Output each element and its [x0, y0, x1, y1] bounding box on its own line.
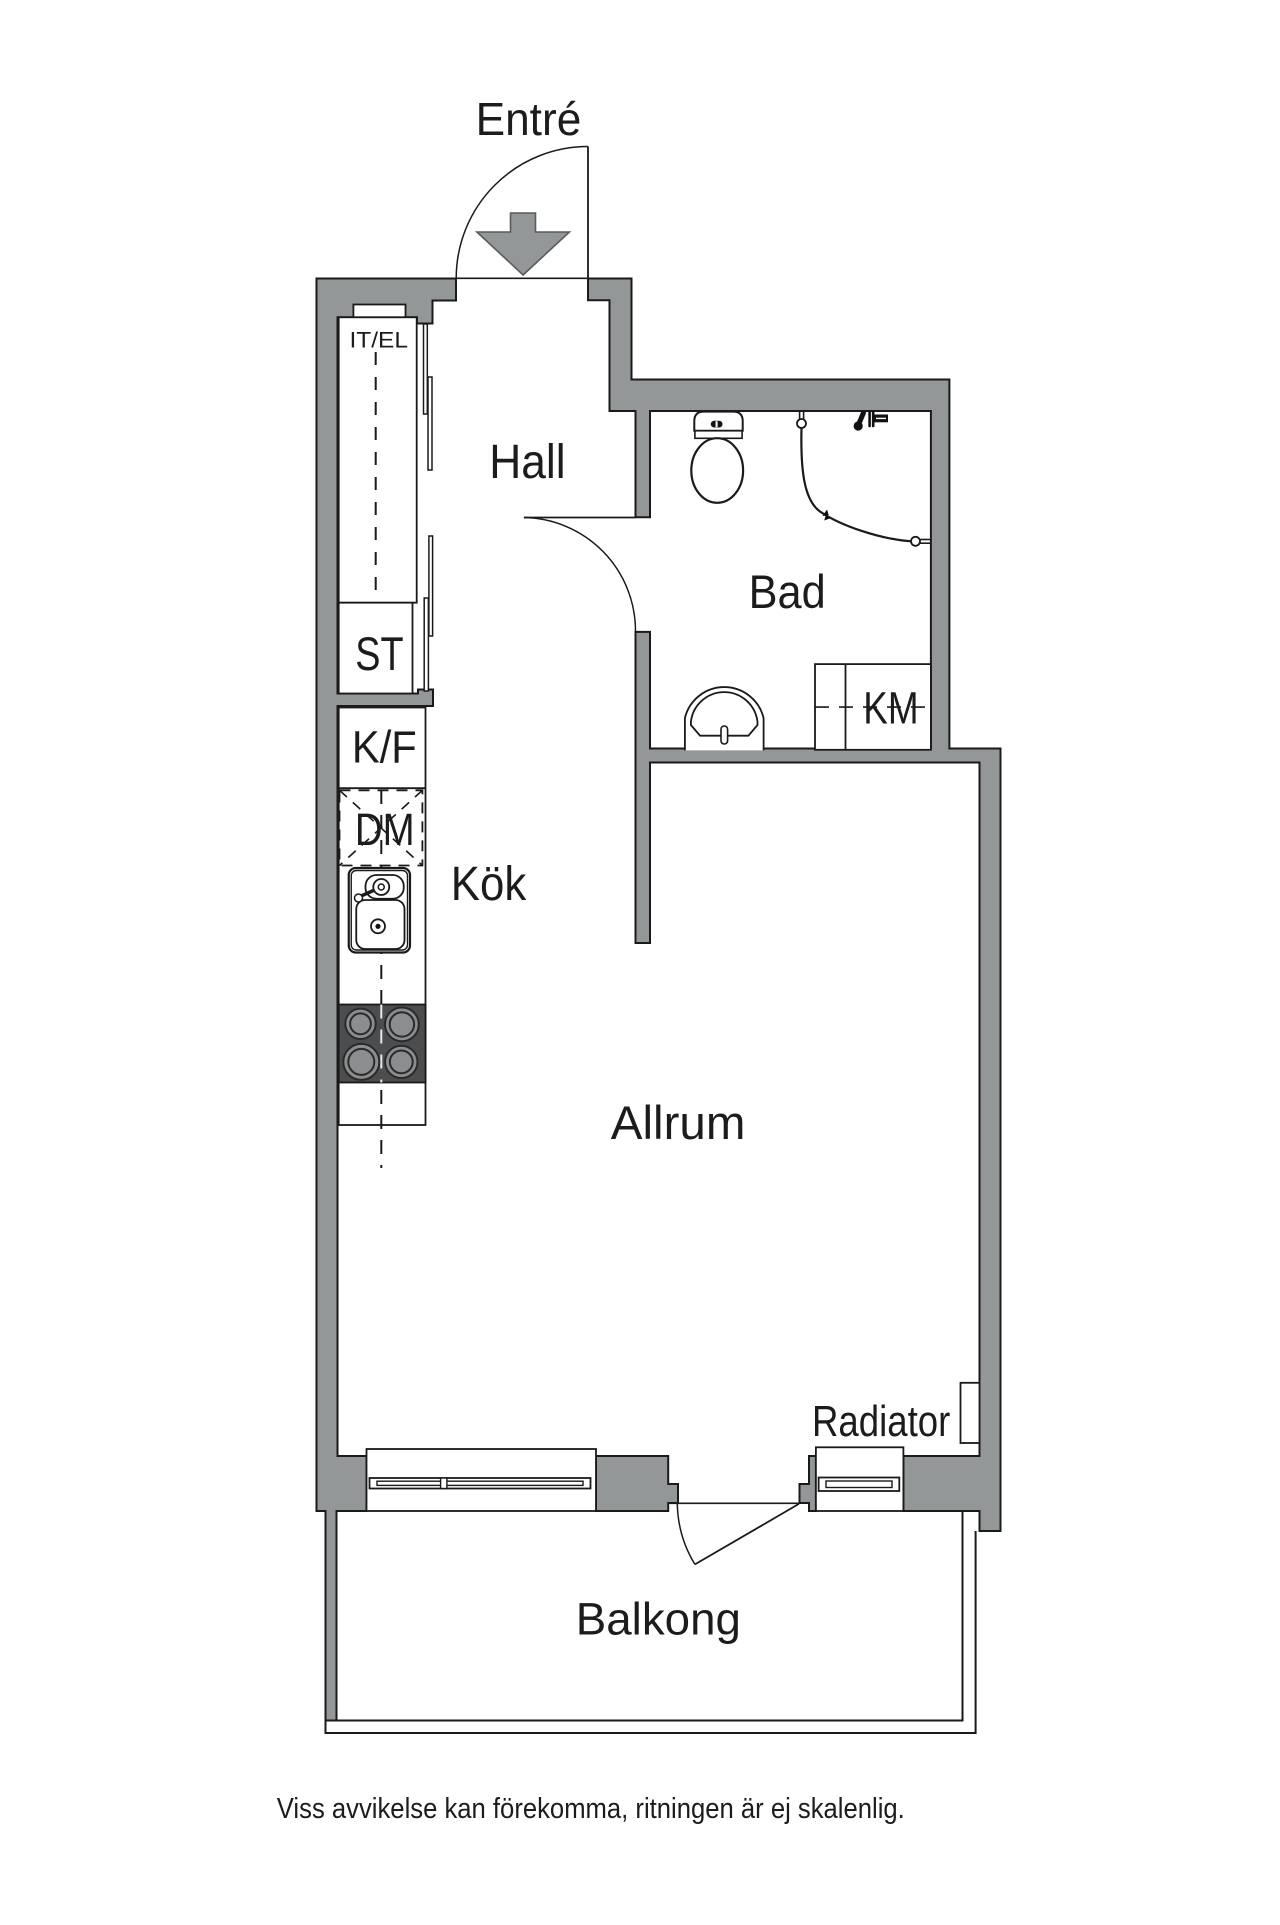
svg-text:Entré: Entré	[476, 93, 582, 145]
svg-text:IT/EL: IT/EL	[350, 327, 409, 352]
svg-text:Balkong: Balkong	[576, 1594, 741, 1645]
svg-text:Viss avvikelse kan förekomma,: Viss avvikelse kan förekomma, ritningen …	[277, 1793, 905, 1825]
svg-text:K/F: K/F	[352, 721, 417, 772]
svg-text:Allrum: Allrum	[611, 1096, 746, 1149]
svg-text:Bad: Bad	[749, 565, 826, 618]
svg-text:ST: ST	[355, 627, 403, 680]
svg-text:Radiator: Radiator	[812, 1397, 950, 1446]
svg-text:Hall: Hall	[489, 436, 565, 489]
svg-text:Kök: Kök	[451, 858, 527, 911]
svg-text:KM: KM	[863, 683, 918, 734]
svg-text:DM: DM	[355, 804, 415, 855]
